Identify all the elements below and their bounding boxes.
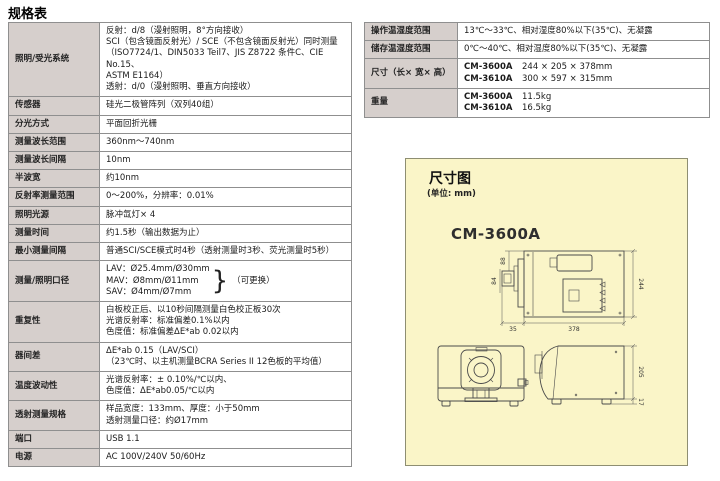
- spec-value: 普通SCI/SCE模式时4秒（透射测量时3秒、荧光测量时5秒）: [100, 243, 352, 261]
- spec-label: 重量: [365, 88, 458, 117]
- page-title: 规格表: [8, 3, 47, 22]
- spec-value: USB 1.1: [100, 430, 352, 448]
- spec-row: 照明光源脉冲氙灯× 4: [9, 206, 352, 224]
- spec-row: 端口USB 1.1: [9, 430, 352, 448]
- spec-row: 传感器硅光二极管阵列（双列40组）: [9, 97, 352, 115]
- spec-row: 最小测量间隔普通SCI/SCE模式时4秒（透射测量时3秒、荧光测量时5秒）: [9, 243, 352, 261]
- spec-value: 样品宽度：133mm、厚度：小于50mm透射测量口径：约Ø17mm: [100, 401, 352, 430]
- dimension-drawing: 244 88 84 35 378: [406, 159, 689, 465]
- spec-label: 反射率测量范围: [9, 188, 100, 206]
- spec-label: 器间差: [9, 342, 100, 371]
- spec-row: 测量时间约1.5秒（输出数据为止）: [9, 224, 352, 242]
- spec-row: 储存温湿度范围0℃～40℃、相对湿度80%以下(35℃)、无凝露: [365, 41, 710, 59]
- spec-label: 测量波长间隔: [9, 151, 100, 169]
- spec-value: 360nm～740nm: [100, 133, 352, 151]
- spec-label: 端口: [9, 430, 100, 448]
- spec-label: 测量时间: [9, 224, 100, 242]
- spec-sheet-page: { "page": { "title": "规格表" }, "left_tabl…: [0, 0, 720, 481]
- spec-value: 约10nm: [100, 170, 352, 188]
- spec-row: 重量CM-3600A11.5kgCM-3610A16.5kg: [365, 88, 710, 117]
- spec-label: 最小测量间隔: [9, 243, 100, 261]
- spec-value: 脉冲氙灯× 4: [100, 206, 352, 224]
- spec-value: 0℃～40℃、相对湿度80%以下(35℃)、无凝露: [458, 41, 710, 59]
- spec-value: 平面回折光栅: [100, 115, 352, 133]
- side-view: 205 17: [535, 344, 644, 406]
- front-view: [438, 346, 528, 406]
- spec-label: 分光方式: [9, 115, 100, 133]
- spec-value: ΔE*ab 0.15（LAV/SCI）（23℃时、以主机测量BCRA Serie…: [100, 342, 352, 371]
- dim-205: 205: [637, 366, 644, 378]
- dim-378: 378: [568, 326, 580, 333]
- spec-label: 重复性: [9, 301, 100, 342]
- spec-value: 硅光二极管阵列（双列40组）: [100, 97, 352, 115]
- dim-88: 88: [500, 257, 507, 265]
- spec-label: 传感器: [9, 97, 100, 115]
- spec-row: 尺寸（长× 宽× 高）CM-3600A244 × 205 × 378mmCM-3…: [365, 59, 710, 88]
- spec-label: 半波宽: [9, 170, 100, 188]
- spec-value: 13℃～33℃、相对湿度80%以下(35℃)、无凝露: [458, 23, 710, 41]
- spec-label: 照明光源: [9, 206, 100, 224]
- spec-value: CM-3600A244 × 205 × 378mmCM-3610A300 × 5…: [458, 59, 710, 88]
- spec-value: CM-3600A11.5kgCM-3610A16.5kg: [458, 88, 710, 117]
- spec-row: 照明/受光系统反射：d/8（漫射照明，8°方向接收）SCI（包含镜面反射光）/ …: [9, 23, 352, 97]
- spec-row: 温度波动性光谱反射率：± 0.10%/℃以内、色度值：ΔE*ab0.05/℃以内: [9, 372, 352, 401]
- spec-value: AC 100V/240V 50/60Hz: [100, 449, 352, 467]
- spec-label: 测量波长范围: [9, 133, 100, 151]
- spec-label: 储存温湿度范围: [365, 41, 458, 59]
- spec-label: 测量/照明口径: [9, 261, 100, 302]
- spec-label: 尺寸（长× 宽× 高）: [365, 59, 458, 88]
- aperture-note: （可更换）: [232, 276, 275, 287]
- spec-row: 操作温湿度范围13℃～33℃、相对湿度80%以下(35℃)、无凝露: [365, 23, 710, 41]
- dim-84: 84: [491, 277, 498, 285]
- spec-label: 透射测量规格: [9, 401, 100, 430]
- spec-value: LAV：Ø25.4mm/Ø30mmMAV：Ø8mm/Ø11mmSAV：Ø4mm/…: [100, 261, 352, 302]
- spec-label: 电源: [9, 449, 100, 467]
- spec-value: 白板校正后、以10秒间隔测量白色校正板30次光谱反射率：标准偏差0.1%以内色度…: [100, 301, 352, 342]
- dim-17: 17: [637, 398, 644, 406]
- spec-value: 约1.5秒（输出数据为止）: [100, 224, 352, 242]
- dimension-diagram-panel: 尺寸图 (单位: mm) CM-3600A 244: [405, 158, 688, 466]
- spec-row: 测量波长范围360nm～740nm: [9, 133, 352, 151]
- spec-value: 光谱反射率：± 0.10%/℃以内、色度值：ΔE*ab0.05/℃以内: [100, 372, 352, 401]
- spec-value: 反射：d/8（漫射照明，8°方向接收）SCI（包含镜面反射光）/ SCE（不包含…: [100, 23, 352, 97]
- spec-label: 温度波动性: [9, 372, 100, 401]
- spec-row: 重复性白板校正后、以10秒间隔测量白色校正板30次光谱反射率：标准偏差0.1%以…: [9, 301, 352, 342]
- spec-value: 10nm: [100, 151, 352, 169]
- spec-table-environment: 操作温湿度范围13℃～33℃、相对湿度80%以下(35℃)、无凝露储存温湿度范围…: [364, 22, 710, 118]
- spec-label: 操作温湿度范围: [365, 23, 458, 41]
- spec-row: 透射测量规格样品宽度：133mm、厚度：小于50mm透射测量口径：约Ø17mm: [9, 401, 352, 430]
- dim-35: 35: [509, 326, 517, 333]
- dim-244: 244: [637, 278, 644, 290]
- top-view: 244 88 84 35 378: [491, 249, 644, 333]
- spec-row: 半波宽约10nm: [9, 170, 352, 188]
- spec-row: 测量波长间隔10nm: [9, 151, 352, 169]
- brace-glyph: }: [212, 268, 229, 294]
- spec-row: 器间差ΔE*ab 0.15（LAV/SCI）（23℃时、以主机测量BCRA Se…: [9, 342, 352, 371]
- spec-label: 照明/受光系统: [9, 23, 100, 97]
- spec-row: 分光方式平面回折光栅: [9, 115, 352, 133]
- spec-row: 电源AC 100V/240V 50/60Hz: [9, 449, 352, 467]
- spec-value: 0～200%，分辨率：0.01%: [100, 188, 352, 206]
- spec-row: 测量/照明口径LAV：Ø25.4mm/Ø30mmMAV：Ø8mm/Ø11mmSA…: [9, 261, 352, 302]
- spec-table-main: 照明/受光系统反射：d/8（漫射照明，8°方向接收）SCI（包含镜面反射光）/ …: [8, 22, 352, 467]
- spec-row: 反射率测量范围0～200%，分辨率：0.01%: [9, 188, 352, 206]
